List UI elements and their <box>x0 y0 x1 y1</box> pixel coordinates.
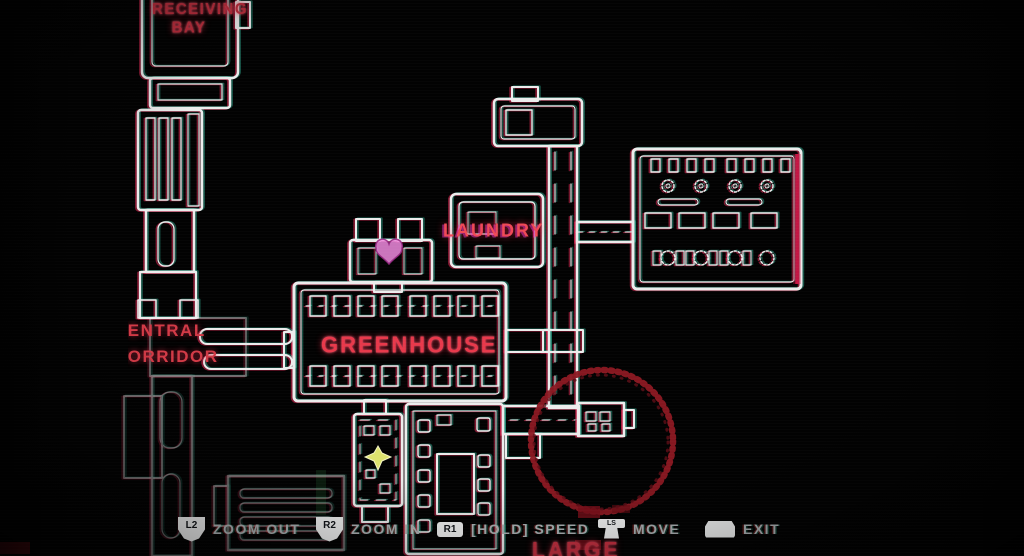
hud-zoom-out-label: ZOOM OUT <box>213 521 300 537</box>
map-screen: RECEIVING BAY LAUNDRY GREENHOUSE CENTRAL… <box>0 0 1024 556</box>
station-map <box>0 0 1024 556</box>
label-laundry: LAUNDRY <box>443 219 544 241</box>
hud-speed[interactable]: R1 [HOLD] SPEED <box>437 514 589 544</box>
label-central-line2: CORRIDOR <box>128 344 219 370</box>
hud-move[interactable]: LS MOVE <box>598 514 680 544</box>
label-central-line1: CENTRAL <box>128 318 219 344</box>
left-stick-icon: LS <box>598 519 625 540</box>
heart-objective-marker <box>376 239 403 264</box>
hud-zoom-out[interactable]: L2 ZOOM OUT <box>178 514 300 544</box>
hud-speed-label: [HOLD] SPEED <box>471 521 589 537</box>
map-line-layer <box>124 0 801 556</box>
objective-circle-marker <box>531 370 673 512</box>
player-position-marker <box>365 446 391 470</box>
r1-bumper-icon: R1 <box>437 522 463 537</box>
glitch-red-mark <box>612 505 630 513</box>
label-receiving-bay: RECEIVING BAY <box>152 0 226 38</box>
l2-trigger-icon: L2 <box>178 517 205 542</box>
label-greenhouse: GREENHOUSE <box>321 331 497 358</box>
hud-zoom-in[interactable]: R2 ZOOM IN <box>316 514 421 544</box>
touchpad-icon <box>705 521 735 538</box>
left-stick-cap: LS <box>598 519 625 528</box>
hud-zoom-in-label: ZOOM IN <box>351 521 421 537</box>
label-receiving-bay-line1: RECEIVING <box>152 0 226 19</box>
left-stick-stem <box>604 528 619 539</box>
hud-exit[interactable]: EXIT <box>705 514 780 544</box>
hud-exit-label: EXIT <box>743 521 780 537</box>
label-receiving-bay-line2: BAY <box>152 19 226 38</box>
hud-move-label: MOVE <box>633 521 680 537</box>
label-central-corridor: CENTRAL CORRIDOR <box>128 318 254 378</box>
glitch-green-streak <box>316 470 326 515</box>
r2-trigger-icon: R2 <box>316 517 343 542</box>
glitch-red-mark <box>0 542 30 554</box>
